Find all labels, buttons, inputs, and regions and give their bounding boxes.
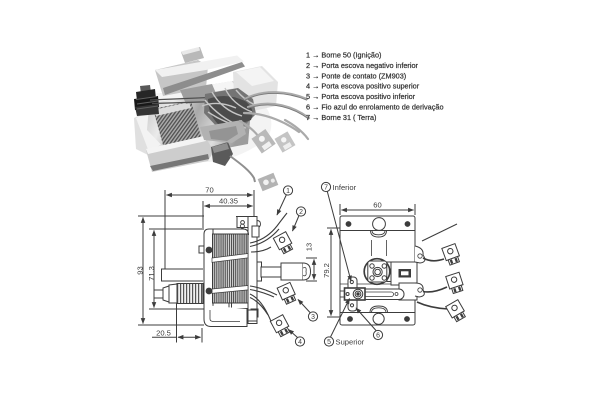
svg-text:7: 7 xyxy=(324,185,328,192)
svg-text:6 → Fio azul do enrolamento de: 6 → Fio azul do enrolamento de derivação xyxy=(306,103,444,112)
svg-text:3: 3 xyxy=(311,314,315,321)
svg-text:70: 70 xyxy=(205,186,213,195)
svg-text:71.3: 71.3 xyxy=(147,266,156,281)
svg-text:93: 93 xyxy=(135,266,144,274)
svg-text:Superior: Superior xyxy=(336,338,365,347)
svg-text:13: 13 xyxy=(304,243,313,251)
svg-text:4 → Porta escova positivo supe: 4 → Porta escova positivo superior xyxy=(306,82,420,91)
svg-text:2: 2 xyxy=(299,209,303,216)
svg-text:5: 5 xyxy=(327,339,331,346)
svg-text:1 → Borne 50 (Ignição): 1 → Borne 50 (Ignição) xyxy=(306,51,381,60)
svg-text:7 → Borne 31 ( Terra): 7 → Borne 31 ( Terra) xyxy=(306,113,376,122)
svg-text:60: 60 xyxy=(373,201,381,210)
svg-text:20.5: 20.5 xyxy=(156,328,171,337)
svg-text:79.2: 79.2 xyxy=(322,263,331,278)
svg-text:40.35: 40.35 xyxy=(219,197,238,206)
svg-text:1: 1 xyxy=(286,188,290,195)
svg-text:3 → Ponte de contato (ZM903): 3 → Ponte de contato (ZM903) xyxy=(306,71,406,80)
svg-text:6: 6 xyxy=(376,333,380,340)
svg-text:2 → Porta escova negativo infe: 2 → Porta escova negativo inferior xyxy=(306,61,419,70)
svg-text:5 → Porta escova positivo infe: 5 → Porta escova positivo inferior xyxy=(306,92,416,101)
svg-text:4: 4 xyxy=(298,339,302,346)
svg-text:Inferior: Inferior xyxy=(333,183,357,192)
